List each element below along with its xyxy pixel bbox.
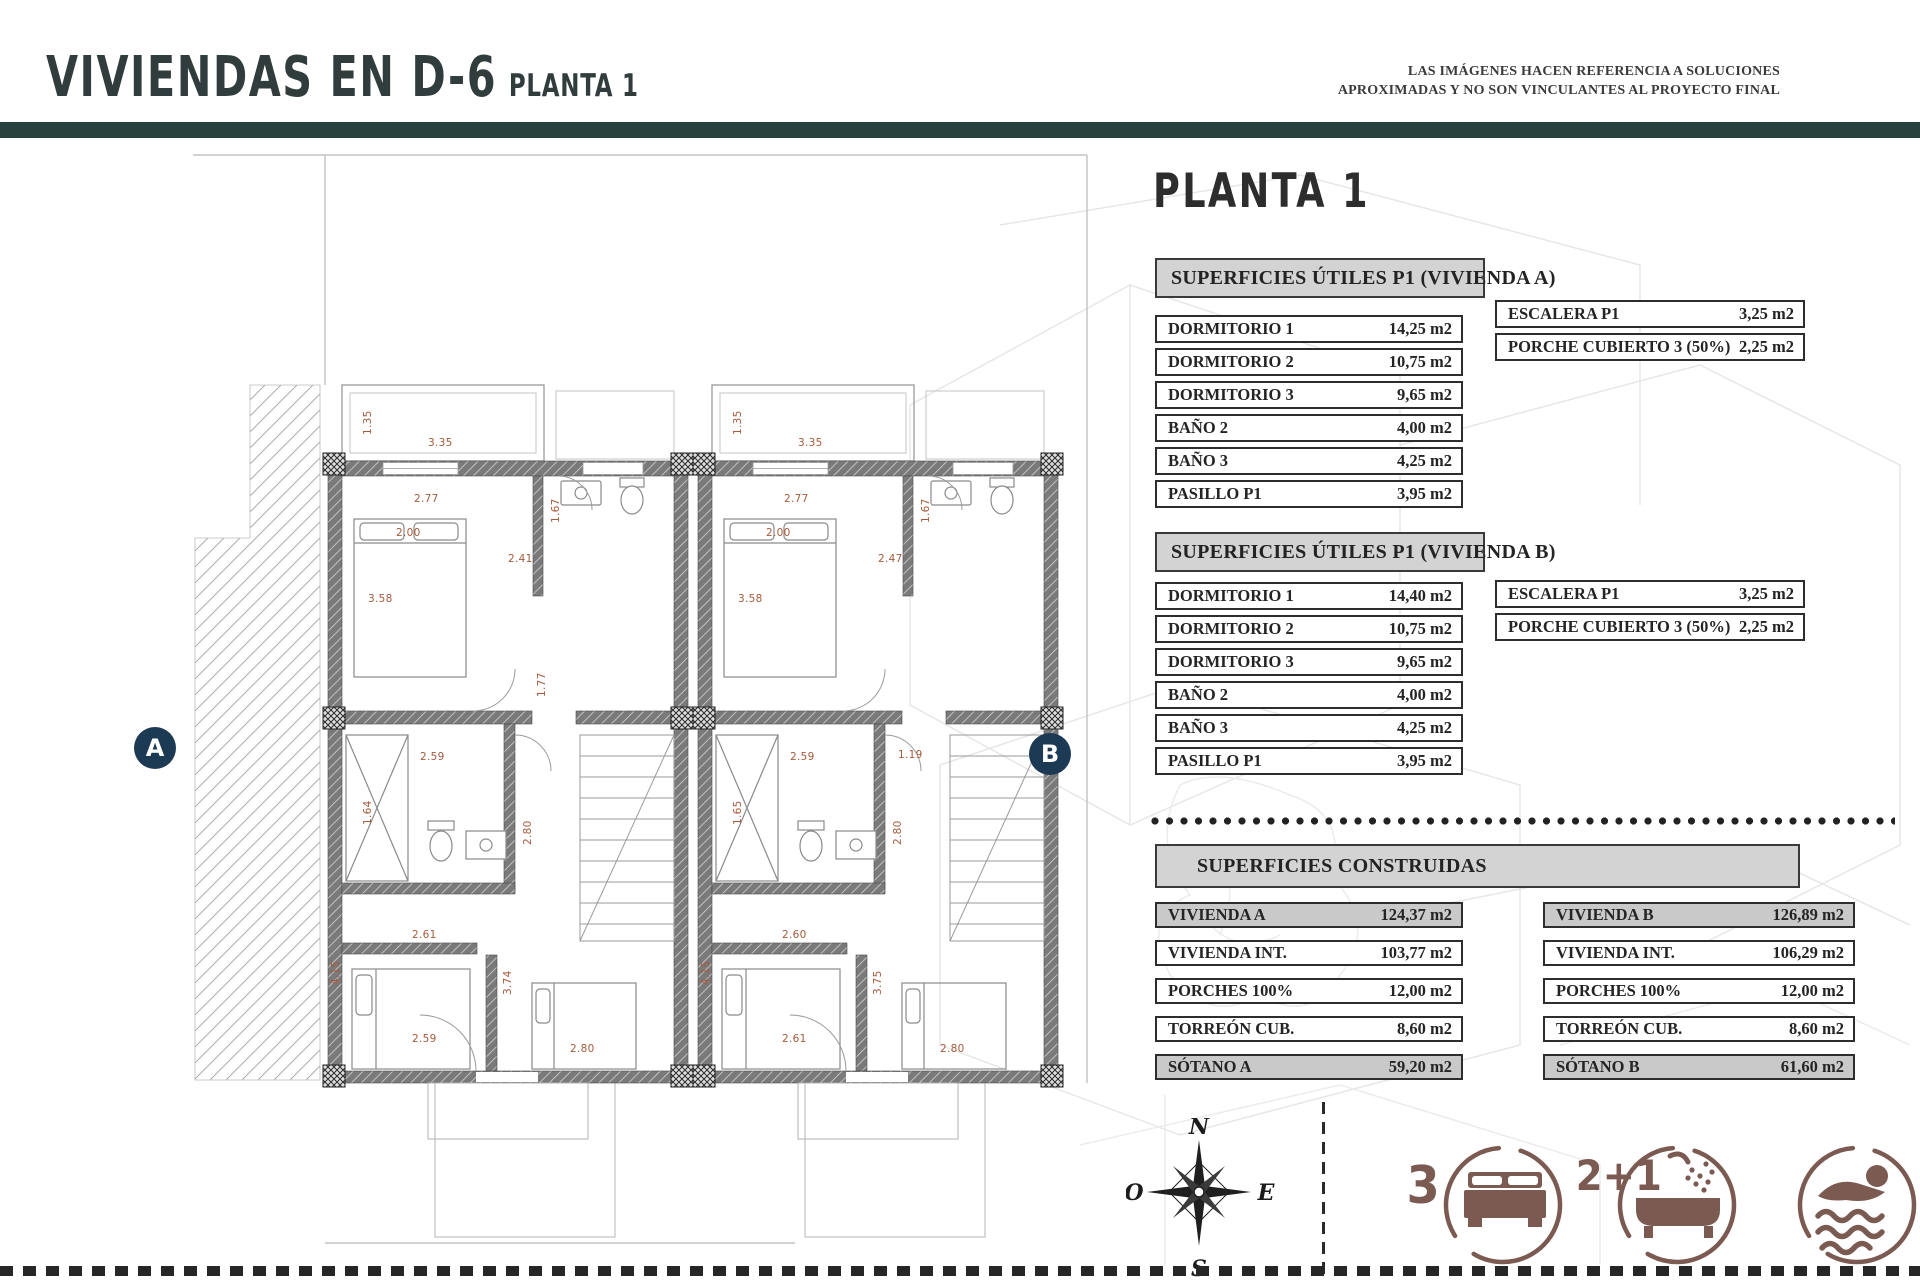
table-utiles-a: DORMITORIO 114,25 m2DORMITORIO 210,75 m2… [1155, 315, 1463, 513]
table-row: SÓTANO B61,60 m2 [1543, 1054, 1855, 1080]
row-label: DORMITORIO 3 [1168, 654, 1294, 671]
table-row: BAÑO 24,00 m2 [1155, 681, 1463, 709]
table-row: DORMITORIO 39,65 m2 [1155, 381, 1463, 409]
row-value: 12,00 m2 [1381, 983, 1452, 1000]
row-label: PORCHE CUBIERTO 3 (50%) [1508, 339, 1730, 356]
table-row: DORMITORIO 210,75 m2 [1155, 615, 1463, 643]
row-label: BAÑO 3 [1168, 720, 1228, 737]
table-row: DORMITORIO 114,40 m2 [1155, 582, 1463, 610]
table-row: BAÑO 24,00 m2 [1155, 414, 1463, 442]
unit-b-badge: B [1029, 733, 1071, 775]
row-label: DORMITORIO 1 [1168, 588, 1294, 605]
row-label: TORREÓN CUB. [1556, 1021, 1682, 1038]
dotted-separator [1148, 816, 1895, 826]
unit-a-badge: A [134, 727, 176, 769]
table-row: BAÑO 34,25 m2 [1155, 714, 1463, 742]
bathroom-count: 2+1 [1576, 1150, 1662, 1202]
disclaimer: LAS IMÁGENES HACEN REFERENCIA A SOLUCION… [1270, 62, 1780, 100]
table-utiles-b: DORMITORIO 114,40 m2DORMITORIO 210,75 m2… [1155, 582, 1463, 780]
row-label: TORREÓN CUB. [1168, 1021, 1294, 1038]
row-value: 126,89 m2 [1765, 907, 1845, 924]
section-header-utiles-a: SUPERFICIES ÚTILES P1 (VIVIENDA A) [1155, 258, 1485, 298]
row-label: DORMITORIO 2 [1168, 354, 1294, 371]
compass-east-label: E [1257, 1180, 1276, 1206]
row-value: 9,65 m2 [1389, 387, 1452, 404]
row-value: 59,20 m2 [1381, 1059, 1452, 1076]
page-title-sub: PLANTA 1 [509, 71, 639, 102]
section-header-construidas: SUPERFICIES CONSTRUIDAS [1155, 844, 1800, 888]
vertical-dashed-divider [1322, 1102, 1325, 1280]
row-label: PORCHES 100% [1168, 983, 1293, 1000]
table-construidas-a: VIVIENDA A124,37 m2VIVIENDA INT.103,77 m… [1155, 902, 1463, 1092]
row-value: 124,37 m2 [1373, 907, 1453, 924]
row-label: ESCALERA P1 [1508, 586, 1619, 603]
row-value: 9,65 m2 [1389, 654, 1452, 671]
table-row: PORCHES 100%12,00 m2 [1155, 978, 1463, 1004]
row-label: BAÑO 2 [1168, 687, 1228, 704]
row-label: SÓTANO B [1556, 1059, 1640, 1076]
row-label: VIVIENDA A [1168, 907, 1266, 924]
row-value: 14,40 m2 [1381, 588, 1452, 605]
table-row: SÓTANO A59,20 m2 [1155, 1054, 1463, 1080]
row-label: BAÑO 2 [1168, 420, 1228, 437]
row-label: VIVIENDA INT. [1168, 945, 1287, 962]
floor-plan-drawing [150, 148, 1110, 1280]
unit-a-plan [323, 385, 693, 1139]
page-title-main: VIVIENDAS EN D-6 [46, 50, 497, 106]
swimmer-icon [1818, 1165, 1888, 1253]
table-row: PORCHE CUBIERTO 3 (50%)2,25 m2 [1495, 613, 1805, 641]
row-value: 3,95 m2 [1389, 753, 1452, 770]
unit-b-plan [693, 385, 1063, 1139]
table-row: PORCHE CUBIERTO 3 (50%)2,25 m2 [1495, 333, 1805, 361]
table-row: VIVIENDA INT.103,77 m2 [1155, 940, 1463, 966]
table-row: VIVIENDA B126,89 m2 [1543, 902, 1855, 928]
row-value: 14,25 m2 [1381, 321, 1452, 338]
section-header-utiles-b: SUPERFICIES ÚTILES P1 (VIVIENDA B) [1155, 532, 1485, 572]
table-row: TORREÓN CUB.8,60 m2 [1155, 1016, 1463, 1042]
disclaimer-line2: APROXIMADAS Y NO SON VINCULANTES AL PROY… [1270, 81, 1780, 100]
row-value: 8,60 m2 [1389, 1021, 1452, 1038]
page-title: VIVIENDAS EN D-6 PLANTA 1 [46, 50, 639, 106]
row-label: SÓTANO A [1168, 1059, 1252, 1076]
compass-rose-icon: N S E O [1126, 1118, 1276, 1280]
row-label: PORCHE CUBIERTO 3 (50%) [1508, 619, 1730, 636]
table-row: PASILLO P13,95 m2 [1155, 747, 1463, 775]
row-value: 2,25 m2 [1731, 619, 1794, 636]
table-utiles-b-side: ESCALERA P13,25 m2PORCHE CUBIERTO 3 (50%… [1495, 580, 1805, 646]
panel-heading: PLANTA 1 [1153, 168, 1370, 215]
row-label: BAÑO 3 [1168, 453, 1228, 470]
table-row: PASILLO P13,95 m2 [1155, 480, 1463, 508]
table-row: DORMITORIO 210,75 m2 [1155, 348, 1463, 376]
row-label: ESCALERA P1 [1508, 306, 1619, 323]
row-value: 3,25 m2 [1731, 586, 1794, 603]
table-row: VIVIENDA INT.106,29 m2 [1543, 940, 1855, 966]
table-row: BAÑO 34,25 m2 [1155, 447, 1463, 475]
table-row: DORMITORIO 114,25 m2 [1155, 315, 1463, 343]
row-value: 12,00 m2 [1773, 983, 1844, 1000]
row-value: 4,25 m2 [1389, 453, 1452, 470]
table-row: TORREÓN CUB.8,60 m2 [1543, 1016, 1855, 1042]
table-utiles-a-side: ESCALERA P13,25 m2PORCHE CUBIERTO 3 (50%… [1495, 300, 1805, 366]
bed-icon [1464, 1172, 1546, 1227]
row-label: DORMITORIO 1 [1168, 321, 1294, 338]
row-value: 103,77 m2 [1373, 945, 1453, 962]
row-value: 10,75 m2 [1381, 354, 1452, 371]
row-value: 3,25 m2 [1731, 306, 1794, 323]
row-label: PASILLO P1 [1168, 753, 1262, 770]
row-value: 61,60 m2 [1773, 1059, 1844, 1076]
compass-west-label: O [1126, 1180, 1144, 1206]
row-value: 4,25 m2 [1389, 720, 1452, 737]
table-row: PORCHES 100%12,00 m2 [1543, 978, 1855, 1004]
disclaimer-line1: LAS IMÁGENES HACEN REFERENCIA A SOLUCION… [1270, 62, 1780, 81]
table-row: VIVIENDA A124,37 m2 [1155, 902, 1463, 928]
row-value: 3,95 m2 [1389, 486, 1452, 503]
row-value: 106,29 m2 [1765, 945, 1845, 962]
table-row: ESCALERA P13,25 m2 [1495, 580, 1805, 608]
row-label: PASILLO P1 [1168, 486, 1262, 503]
row-value: 4,00 m2 [1389, 420, 1452, 437]
row-value: 2,25 m2 [1731, 339, 1794, 356]
hatched-boundary-strip [195, 385, 320, 1080]
table-row: ESCALERA P13,25 m2 [1495, 300, 1805, 328]
row-label: DORMITORIO 3 [1168, 387, 1294, 404]
row-value: 4,00 m2 [1389, 687, 1452, 704]
header-divider-bar [0, 122, 1920, 138]
table-construidas-b: VIVIENDA B126,89 m2VIVIENDA INT.106,29 m… [1543, 902, 1855, 1092]
row-label: VIVIENDA B [1556, 907, 1654, 924]
row-label: DORMITORIO 2 [1168, 621, 1294, 638]
row-label: VIVIENDA INT. [1556, 945, 1675, 962]
row-value: 10,75 m2 [1381, 621, 1452, 638]
floor-plan: 1.353.352.772.003.582.411.671.772.591.64… [150, 148, 1110, 1280]
compass-north-label: N [1188, 1118, 1210, 1140]
bottom-dashed-line [0, 1266, 1920, 1276]
row-value: 8,60 m2 [1781, 1021, 1844, 1038]
table-row: DORMITORIO 39,65 m2 [1155, 648, 1463, 676]
row-label: PORCHES 100% [1556, 983, 1681, 1000]
bedroom-count: 3 [1406, 1160, 1439, 1212]
